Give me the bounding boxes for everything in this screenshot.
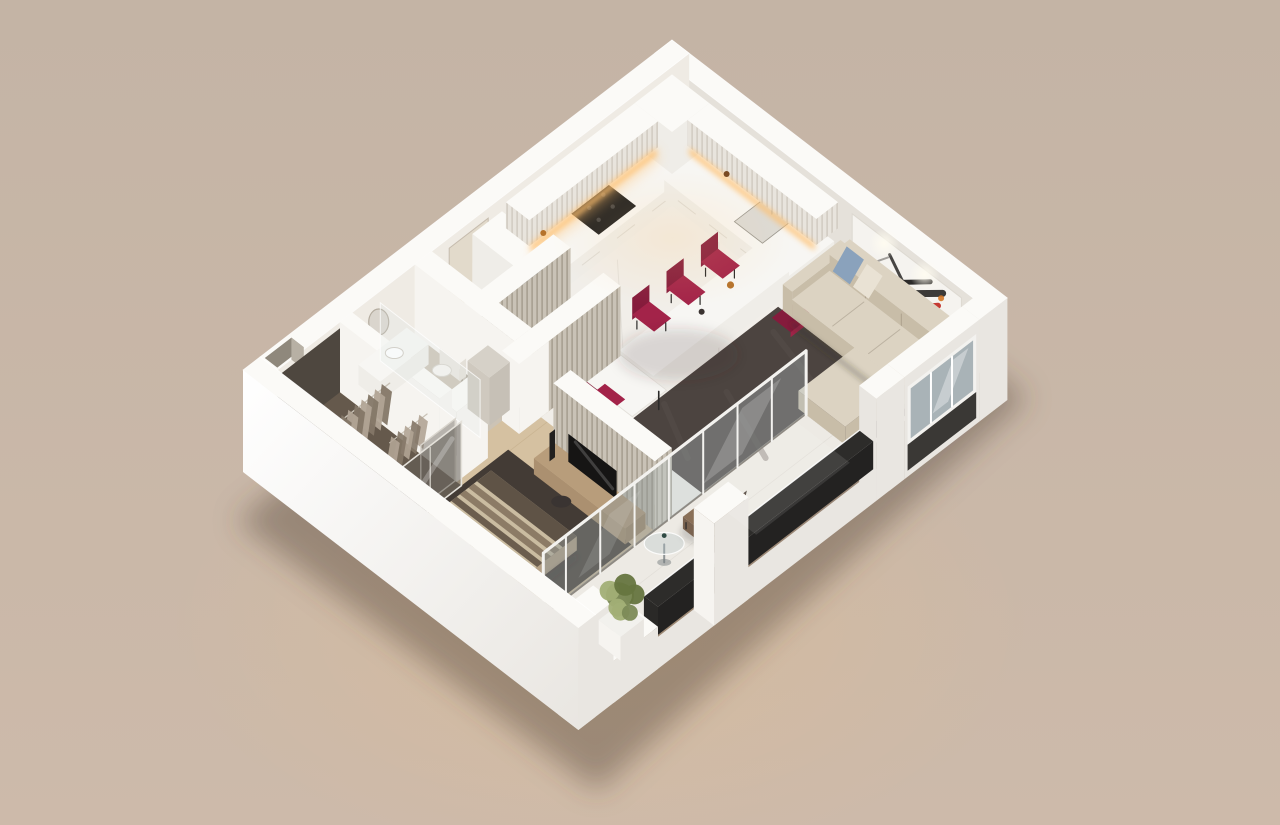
black-vase bbox=[550, 429, 556, 461]
floor-plan-render-stage bbox=[0, 0, 1280, 825]
decor-jar bbox=[540, 230, 546, 236]
stool bbox=[551, 496, 571, 508]
ceiling-spot bbox=[869, 228, 899, 258]
apartment-3d-floor-plan bbox=[0, 0, 1280, 825]
ceiling-spot bbox=[910, 260, 940, 290]
bottle bbox=[662, 533, 667, 538]
